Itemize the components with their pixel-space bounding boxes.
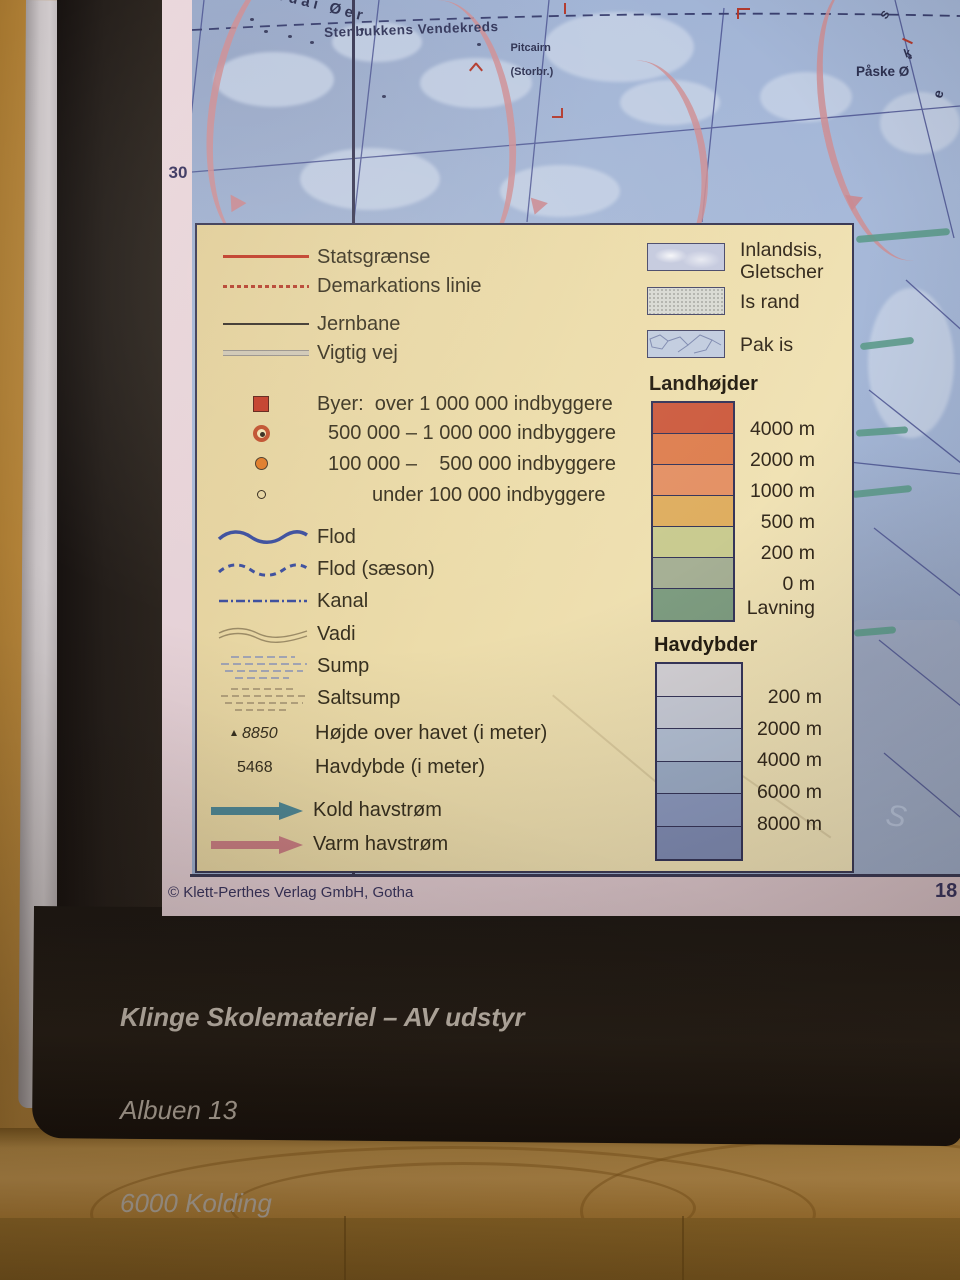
elevation-tick-label: 4000 m xyxy=(725,418,815,441)
elevation-tick-label: 2000 m xyxy=(725,449,815,472)
state-border-symbol xyxy=(223,255,309,258)
elevation-band xyxy=(653,589,733,620)
legend-label: Havdybde (i meter) xyxy=(315,756,485,779)
legend-label: Varm havstrøm xyxy=(313,833,448,856)
sea-depths-scale xyxy=(655,662,743,861)
legend-label: Byer: over 1 000 000 indbyggere xyxy=(317,393,613,416)
depth-band xyxy=(657,762,741,795)
label-pitcairn-line2: (Storbr.) xyxy=(510,66,553,78)
pack-ice-patch xyxy=(647,330,725,358)
elevation-band xyxy=(653,527,733,558)
inland-ice-patch xyxy=(647,243,725,271)
island-dot xyxy=(310,41,314,44)
margin-number-18: 18 xyxy=(935,880,957,903)
legend-label: Flod xyxy=(317,526,356,549)
depth-tick-label: 200 m xyxy=(732,686,822,709)
spot-height-value: 8850 xyxy=(231,725,278,743)
elevation-tick-label: 0 m xyxy=(725,573,815,596)
elevation-band xyxy=(653,558,733,589)
red-mark xyxy=(737,8,739,19)
ice-edge-patch xyxy=(647,287,725,315)
cold-current-symbol xyxy=(209,801,307,821)
sea-depths-heading: Havdybder xyxy=(654,634,757,657)
city-over-1m-symbol xyxy=(253,396,269,412)
map-neatline-bottom xyxy=(190,874,960,877)
island-dot xyxy=(264,30,268,33)
label-easter-island: Påske Ø xyxy=(856,64,909,79)
depth-tick-label: 8000 m xyxy=(732,813,822,836)
map-sheet: Tubuai Øer Stenbukkens Vendekreds Pitcai… xyxy=(162,0,960,916)
red-mark xyxy=(564,3,566,14)
peak-triangle-icon xyxy=(231,730,237,736)
seasonal-river-symbol xyxy=(217,561,309,578)
elevation-band xyxy=(653,434,733,465)
warm-current-arrowhead xyxy=(843,195,863,212)
legend-label: Demarkations linie xyxy=(317,275,482,298)
margin-number-30: 30 xyxy=(166,163,190,183)
island-dot xyxy=(477,43,481,46)
legend-label: under 100 000 indbyggere xyxy=(372,484,606,507)
island-dot xyxy=(288,35,292,38)
legend-label: 100 000 – 500 000 indbyggere xyxy=(328,453,616,476)
sea-depth-value: 5468 xyxy=(237,759,273,777)
legend-label: Vadi xyxy=(317,623,356,646)
supplier-city: 6000 Kolding xyxy=(120,1188,618,1219)
depth-band xyxy=(657,729,741,762)
supplier-street: Albuen 13 xyxy=(120,1095,618,1126)
warm-current-symbol xyxy=(209,835,307,855)
depth-band xyxy=(657,794,741,827)
canal-symbol xyxy=(217,595,309,607)
depth-tick-label: 2000 m xyxy=(732,718,822,741)
salt-swamp-symbol xyxy=(217,685,309,713)
land-heights-heading: Landhøjder xyxy=(649,373,758,396)
city-500k-1m-symbol xyxy=(253,425,270,442)
legend-label: Pak is xyxy=(740,334,793,357)
elevation-band xyxy=(653,465,733,496)
island-dot xyxy=(382,95,386,98)
legend-label: Kanal xyxy=(317,590,368,613)
elevation-tick-label: Lavning xyxy=(725,597,815,620)
elevation-band xyxy=(653,496,733,527)
label-pitcairn: Pitcairn (Storbr.) xyxy=(486,30,553,90)
legend-label: Is rand xyxy=(740,291,800,314)
floor-plank-seam xyxy=(682,1216,684,1280)
legend-label: Gletscher xyxy=(740,261,823,284)
legend-label: Højde over havet (i meter) xyxy=(315,722,547,745)
legend-box: Statsgrænse Demarkations linie Jernbane … xyxy=(195,223,854,873)
red-mark xyxy=(561,108,563,118)
land-heights-scale xyxy=(651,401,735,622)
swamp-symbol xyxy=(217,653,309,681)
spot-height-number: 8850 xyxy=(242,725,278,742)
legend-label: Jernbane xyxy=(317,313,400,336)
legend-label: 500 000 – 1 000 000 indbyggere xyxy=(328,422,616,445)
photo-of-wall-map: Tubuai Øer Stenbukkens Vendekreds Pitcai… xyxy=(0,0,960,1280)
legend-label: Statsgrænse xyxy=(317,246,430,269)
legend-label: Sump xyxy=(317,655,369,678)
label-pitcairn-line1: Pitcairn xyxy=(510,42,550,54)
demarcation-line-symbol xyxy=(223,285,309,288)
elevation-band xyxy=(653,403,733,434)
island-dot xyxy=(250,18,254,21)
supplier-name: Klinge Skolemateriel – AV udstyr xyxy=(120,1002,618,1033)
legend-label: Vigtig vej xyxy=(317,342,398,365)
legend-label: Kold havstrøm xyxy=(313,799,442,822)
wood-grain-arc xyxy=(580,1138,960,1220)
depth-band xyxy=(657,664,741,697)
river-symbol xyxy=(217,528,309,545)
main-road-symbol xyxy=(223,350,309,356)
copyright-line: © Klett-Perthes Verlag GmbH, Gotha xyxy=(168,884,413,901)
wadi-symbol xyxy=(217,625,309,643)
railway-symbol xyxy=(223,323,309,325)
legend-label: Saltsump xyxy=(317,687,400,710)
depth-tick-label: 6000 m xyxy=(732,781,822,804)
supplier-imprint: Klinge Skolemateriel – AV udstyr Albuen … xyxy=(120,940,618,1280)
pack-ice-cracks xyxy=(648,331,723,356)
depth-tick-label: 4000 m xyxy=(732,749,822,772)
depth-band xyxy=(657,697,741,730)
city-under-100k-symbol xyxy=(257,490,266,499)
elevation-tick-label: 1000 m xyxy=(725,480,815,503)
elevation-tick-label: 200 m xyxy=(725,542,815,565)
depth-band xyxy=(657,827,741,860)
legend-label: Inlandsis, xyxy=(740,239,822,262)
legend-label: Flod (sæson) xyxy=(317,558,435,581)
elevation-tick-label: 500 m xyxy=(725,511,815,534)
city-100k-500k-symbol xyxy=(255,457,268,470)
